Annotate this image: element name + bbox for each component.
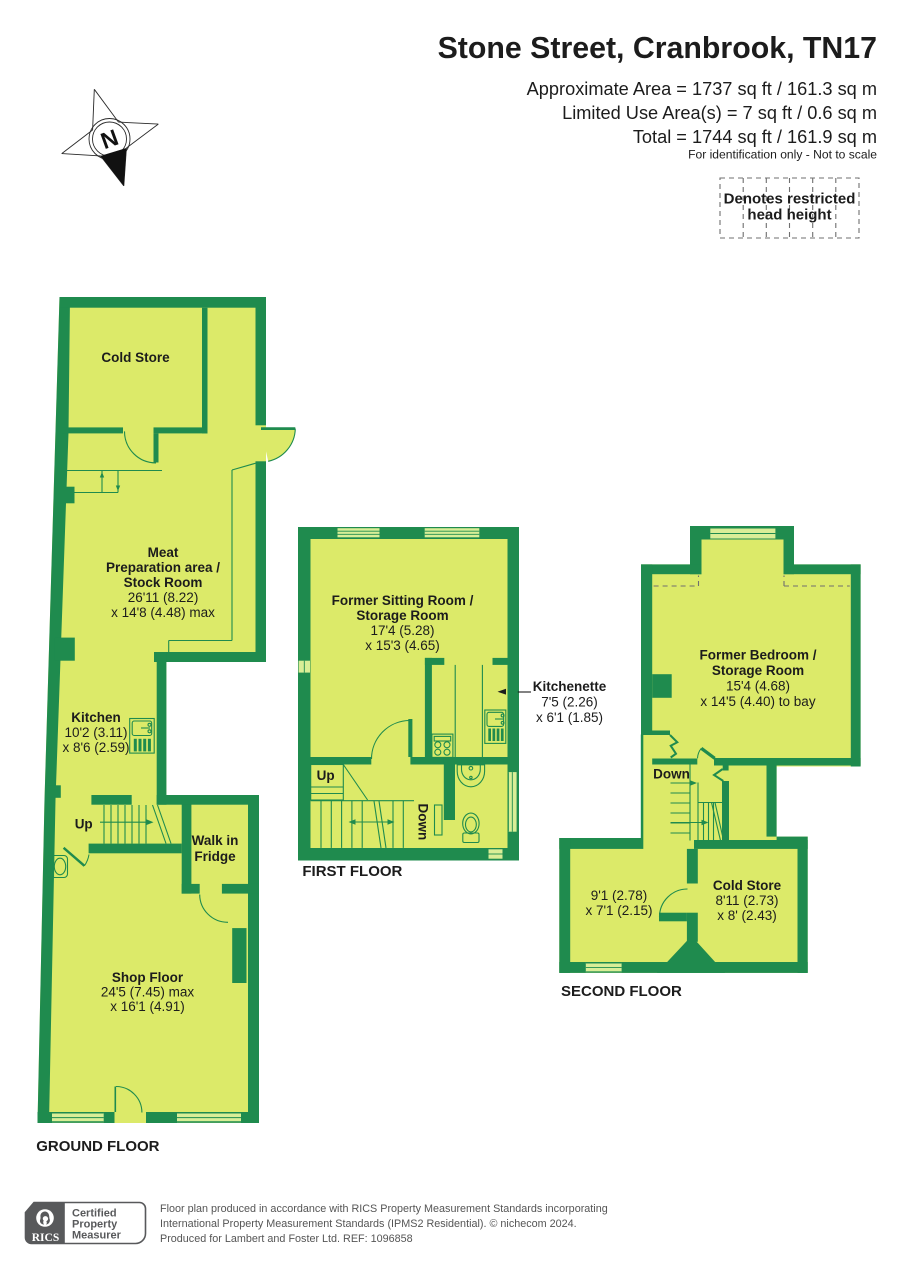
svg-text:Up: Up <box>317 768 335 783</box>
svg-text:8'11 (2.73): 8'11 (2.73) <box>715 893 778 908</box>
svg-text:Up: Up <box>75 816 93 831</box>
svg-text:Storage Room: Storage Room <box>356 608 448 623</box>
svg-text:x 8'6 (2.59): x 8'6 (2.59) <box>62 740 129 755</box>
svg-text:Stock Room: Stock Room <box>124 575 203 590</box>
svg-text:FIRST FLOOR: FIRST FLOOR <box>302 863 402 880</box>
svg-text:26'11 (8.22): 26'11 (8.22) <box>128 590 199 605</box>
svg-text:x 14'8 (4.48) max: x 14'8 (4.48) max <box>111 605 215 620</box>
svg-text:Kitchenette: Kitchenette <box>533 679 607 694</box>
svg-text:Fridge: Fridge <box>194 849 236 864</box>
svg-text:RICS: RICS <box>32 1232 59 1244</box>
svg-text:head height: head height <box>747 207 831 224</box>
svg-text:GROUND FLOOR: GROUND FLOOR <box>36 1138 159 1155</box>
svg-text:SECOND FLOOR: SECOND FLOOR <box>561 983 682 1000</box>
svg-text:Kitchen: Kitchen <box>71 710 121 725</box>
svg-text:Stone Street, Cranbrook, TN17: Stone Street, Cranbrook, TN17 <box>438 32 877 65</box>
svg-text:Down: Down <box>416 804 431 841</box>
svg-text:15'4 (4.68): 15'4 (4.68) <box>726 679 790 694</box>
svg-text:9'1 (2.78): 9'1 (2.78) <box>591 888 648 903</box>
svg-text:x 16'1 (4.91): x 16'1 (4.91) <box>110 999 185 1014</box>
svg-text:Cold Store: Cold Store <box>101 350 170 365</box>
svg-text:Approximate Area = 1737 sq ft: Approximate Area = 1737 sq ft / 161.3 sq… <box>527 79 877 99</box>
svg-text:Cold Store: Cold Store <box>713 878 782 893</box>
svg-text:Shop Floor: Shop Floor <box>112 970 184 985</box>
svg-text:Limited Use Area(s) = 7 sq ft: Limited Use Area(s) = 7 sq ft / 0.6 sq m <box>562 103 877 123</box>
svg-text:24'5 (7.45) max: 24'5 (7.45) max <box>101 985 195 1000</box>
svg-text:Produced for Lambert and Foste: Produced for Lambert and Foster Ltd. REF… <box>160 1233 413 1245</box>
svg-text:Measurer: Measurer <box>72 1230 122 1242</box>
svg-text:Storage Room: Storage Room <box>712 663 804 678</box>
svg-text:Former Bedroom /: Former Bedroom / <box>699 648 816 663</box>
svg-text:x 6'1 (1.85): x 6'1 (1.85) <box>536 710 603 725</box>
svg-text:Floor plan produced in accorda: Floor plan produced in accordance with R… <box>160 1203 608 1215</box>
svg-text:Former Sitting Room /: Former Sitting Room / <box>332 593 474 608</box>
svg-text:x 7'1 (2.15): x 7'1 (2.15) <box>585 903 652 918</box>
svg-text:x 15'3 (4.65): x 15'3 (4.65) <box>365 638 440 653</box>
svg-text:Denotes restricted: Denotes restricted <box>724 191 856 208</box>
svg-text:10'2 (3.11): 10'2 (3.11) <box>64 725 127 740</box>
svg-text:International Property Measure: International Property Measurement Stand… <box>160 1218 577 1230</box>
svg-text:Total = 1744 sq ft / 161.9 sq: Total = 1744 sq ft / 161.9 sq m <box>633 127 877 147</box>
svg-text:x 14'5 (4.40) to bay: x 14'5 (4.40) to bay <box>700 694 815 709</box>
svg-text:x 8' (2.43): x 8' (2.43) <box>717 908 777 923</box>
svg-text:For identification only - Not: For identification only - Not to scale <box>688 148 877 162</box>
svg-text:17'4 (5.28): 17'4 (5.28) <box>370 623 434 638</box>
svg-text:7'5 (2.26): 7'5 (2.26) <box>541 695 598 710</box>
svg-text:Down: Down <box>653 766 690 781</box>
svg-text:Walk in: Walk in <box>192 833 239 848</box>
svg-text:Preparation area /: Preparation area / <box>106 560 220 575</box>
svg-text:Meat: Meat <box>148 545 179 560</box>
